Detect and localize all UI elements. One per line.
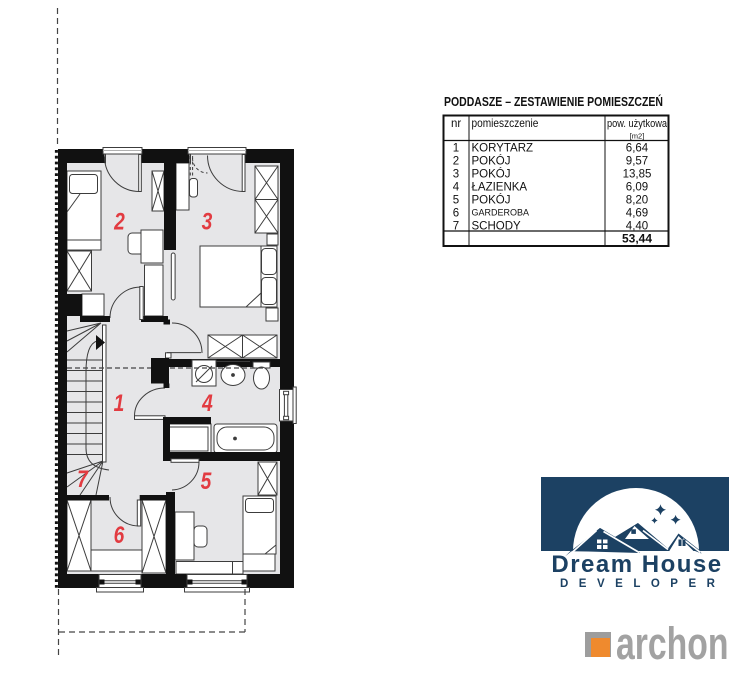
svg-text:Dream House: Dream House bbox=[551, 551, 722, 578]
svg-text:KORYTARZ: KORYTARZ bbox=[472, 143, 534, 155]
svg-text:1: 1 bbox=[114, 389, 125, 417]
svg-text:53,44: 53,44 bbox=[622, 232, 652, 246]
svg-text:POKÓJ: POKÓJ bbox=[472, 194, 511, 207]
svg-text:4,69: 4,69 bbox=[626, 208, 648, 220]
svg-text:5: 5 bbox=[201, 467, 212, 495]
svg-text:9,57: 9,57 bbox=[626, 156, 648, 168]
svg-text:1: 1 bbox=[453, 143, 459, 155]
svg-text:SCHODY: SCHODY bbox=[472, 221, 522, 233]
svg-text:13,85: 13,85 bbox=[623, 169, 652, 181]
svg-text:pomieszczenie: pomieszczenie bbox=[472, 117, 539, 130]
svg-text:archon: archon bbox=[616, 619, 728, 669]
svg-text:GARDEROBA: GARDEROBA bbox=[472, 208, 530, 218]
svg-text:nr: nr bbox=[451, 118, 461, 130]
svg-text:3: 3 bbox=[202, 207, 213, 235]
svg-text:ŁAZIENKA: ŁAZIENKA bbox=[472, 182, 528, 194]
svg-text:[m2]: [m2] bbox=[630, 132, 645, 141]
svg-text:2: 2 bbox=[453, 156, 459, 168]
svg-text:6,64: 6,64 bbox=[626, 143, 649, 155]
svg-text:7: 7 bbox=[77, 465, 88, 493]
svg-text:5: 5 bbox=[453, 195, 459, 207]
svg-text:6: 6 bbox=[453, 208, 459, 220]
svg-text:POKÓJ: POKÓJ bbox=[472, 168, 511, 181]
svg-text:6: 6 bbox=[114, 521, 125, 549]
svg-text:7: 7 bbox=[453, 221, 459, 233]
svg-text:4: 4 bbox=[201, 389, 213, 417]
svg-text:DEVELOPER: DEVELOPER bbox=[560, 578, 725, 590]
svg-text:PODDASZE – ZESTAWIENIE POMIESZ: PODDASZE – ZESTAWIENIE POMIESZCZEŃ bbox=[444, 95, 663, 109]
svg-text:6,09: 6,09 bbox=[626, 182, 648, 194]
svg-text:2: 2 bbox=[113, 207, 125, 235]
svg-text:POKÓJ: POKÓJ bbox=[472, 155, 511, 168]
svg-text:3: 3 bbox=[453, 169, 459, 181]
svg-text:8,20: 8,20 bbox=[626, 195, 648, 207]
svg-text:4: 4 bbox=[453, 182, 460, 194]
svg-text:pow. użytkowa: pow. użytkowa bbox=[607, 118, 667, 130]
